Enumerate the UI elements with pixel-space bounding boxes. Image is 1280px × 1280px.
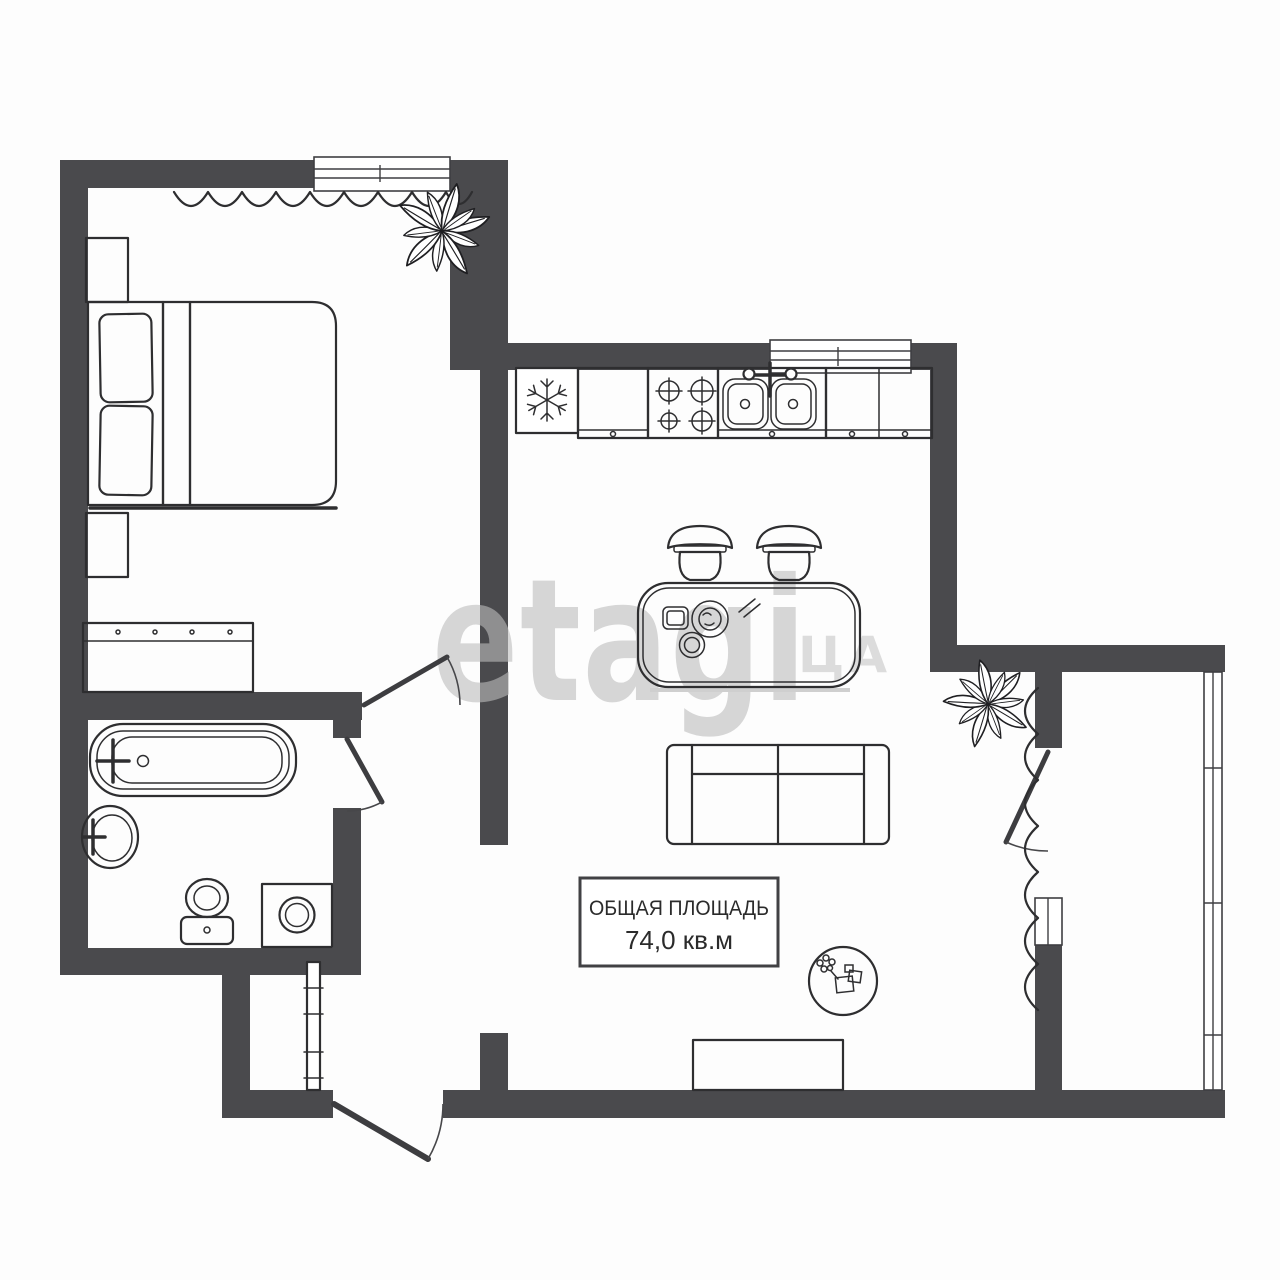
nightstand bbox=[86, 238, 128, 302]
floor-plan-svg: etagi ЦА bbox=[0, 0, 1280, 1280]
balcony-right-window bbox=[1204, 672, 1222, 1090]
wall-segment bbox=[443, 1090, 1225, 1118]
wall-segment bbox=[60, 160, 88, 975]
wall-segment bbox=[930, 645, 1225, 672]
toilet-icon bbox=[181, 879, 233, 944]
fridge bbox=[516, 368, 578, 433]
bedroom-window bbox=[314, 157, 450, 191]
wash-basin bbox=[82, 806, 138, 868]
wall-segment bbox=[333, 720, 361, 738]
double-bed bbox=[88, 302, 336, 508]
kitchen bbox=[516, 363, 932, 438]
burner-icon bbox=[656, 377, 716, 434]
bathtub-icon bbox=[90, 724, 296, 796]
wall-segment bbox=[60, 692, 362, 720]
entrance-door-leaf bbox=[334, 1104, 428, 1159]
wall-segment bbox=[1035, 945, 1062, 1090]
flower-icon bbox=[817, 955, 838, 979]
balcony-left-window bbox=[1035, 898, 1062, 945]
entrance-door-arc bbox=[428, 1104, 443, 1159]
stove bbox=[648, 368, 718, 438]
wall-segment bbox=[222, 1090, 333, 1118]
bedroom bbox=[83, 192, 472, 692]
sofa bbox=[667, 745, 889, 844]
floor-plan-page: etagi ЦА bbox=[0, 0, 1280, 1280]
area-label-line1: ОБЩАЯ ПЛОЩАДЬ bbox=[589, 897, 769, 920]
wall-segment bbox=[930, 343, 957, 658]
tub-faucet-icon bbox=[97, 740, 149, 782]
entrance-door bbox=[334, 1104, 443, 1159]
mattress bbox=[190, 302, 336, 505]
hallway-closet bbox=[304, 962, 323, 1090]
bathroom bbox=[82, 724, 332, 947]
faucet-icon bbox=[744, 363, 797, 396]
tv-stand bbox=[693, 1040, 843, 1090]
wall-segment bbox=[480, 1033, 508, 1090]
coffee-table bbox=[809, 947, 877, 1015]
wall-segment bbox=[60, 160, 314, 188]
balcony-door-arc bbox=[1006, 842, 1048, 851]
watermark-suffix: ЦА bbox=[798, 626, 891, 684]
counter bbox=[826, 368, 932, 438]
kitchen-sink bbox=[718, 363, 826, 438]
watermark: etagi ЦА bbox=[432, 544, 891, 741]
bathroom-door-leaf bbox=[347, 739, 382, 802]
hallway bbox=[304, 962, 323, 1090]
washing-machine-icon bbox=[262, 884, 332, 947]
nightstand bbox=[86, 513, 128, 577]
bathroom-door bbox=[347, 739, 382, 811]
wardrobe bbox=[83, 623, 253, 692]
area-label-line2: 74,0 кв.м bbox=[625, 925, 733, 955]
counter bbox=[578, 368, 648, 438]
bed-fold bbox=[163, 302, 190, 505]
wall-segment bbox=[508, 343, 770, 370]
watermark-text: etagi bbox=[432, 544, 808, 741]
wall-segment bbox=[1035, 672, 1062, 748]
pillow bbox=[99, 314, 153, 403]
pillow bbox=[99, 406, 153, 496]
area-label-box: ОБЩАЯ ПЛОЩАДЬ 74,0 кв.м bbox=[580, 878, 778, 966]
